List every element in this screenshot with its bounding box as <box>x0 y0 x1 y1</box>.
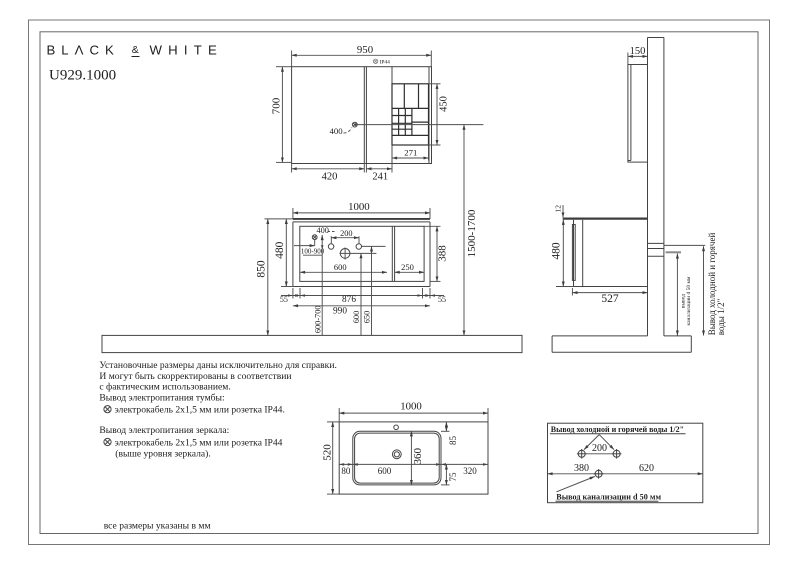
svg-text:WHITE: WHITE <box>150 43 224 58</box>
svg-text:600: 600 <box>378 466 392 476</box>
svg-text:480: 480 <box>550 242 562 260</box>
svg-text:700: 700 <box>270 97 282 114</box>
svg-text:Установочные размеры даны искл: Установочные размеры даны исключительно … <box>99 360 336 371</box>
svg-text:527: 527 <box>601 293 619 305</box>
svg-text:600: 600 <box>352 311 361 323</box>
svg-text:55: 55 <box>438 295 446 304</box>
svg-text:450: 450 <box>438 96 449 112</box>
svg-text:И могут быть скорректированы в: И могут быть скорректированы в соответст… <box>99 371 291 382</box>
svg-text:990: 990 <box>333 306 347 316</box>
svg-text:360: 360 <box>412 448 424 465</box>
svg-text:600-700: 600-700 <box>314 305 323 333</box>
svg-text:с фактическим использованием.: с фактическим использованием. <box>99 382 230 393</box>
svg-text:75: 75 <box>448 472 458 482</box>
svg-text:400: 400 <box>330 126 344 136</box>
svg-text:200: 200 <box>340 229 352 238</box>
svg-text:1000: 1000 <box>400 401 422 413</box>
svg-text:620: 620 <box>639 463 654 474</box>
svg-text:электрокабель 2х1,5 мм или роз: электрокабель 2х1,5 мм или розетка IP44 <box>115 437 283 448</box>
svg-text:388: 388 <box>437 245 449 262</box>
svg-text:320: 320 <box>463 466 477 476</box>
svg-text:85: 85 <box>448 436 458 446</box>
svg-text:Вывод канализации d 50 мм: Вывод канализации d 50 мм <box>556 493 661 502</box>
svg-text:876: 876 <box>342 295 356 305</box>
svg-text:(выше уровня зеркала).: (выше уровня зеркала). <box>115 449 210 460</box>
svg-text:Вывод электропитания тумбы:: Вывод электропитания тумбы: <box>99 393 224 404</box>
svg-text:&: & <box>132 44 139 56</box>
svg-text:520: 520 <box>322 444 334 461</box>
svg-text:канализации d 50 мм: канализации d 50 мм <box>686 276 692 325</box>
svg-text:271: 271 <box>404 148 417 158</box>
svg-text:воды 1/2": воды 1/2" <box>716 298 726 335</box>
svg-text:U929.1000: U929.1000 <box>49 68 116 84</box>
svg-text:Вывод электропитания зеркала:: Вывод электропитания зеркала: <box>99 425 229 436</box>
svg-text:Вывод холодной и горячей воды: Вывод холодной и горячей воды 1/2" <box>551 425 684 434</box>
svg-text:IP44: IP44 <box>380 60 391 66</box>
svg-text:950: 950 <box>357 44 373 56</box>
svg-text:BLΛCK: BLΛCK <box>47 43 120 58</box>
svg-text:200: 200 <box>592 443 607 454</box>
svg-text:электрокабель 2х1,5 мм или роз: электрокабель 2х1,5 мм или розетка IP44. <box>115 404 285 415</box>
svg-text:420: 420 <box>322 172 338 183</box>
svg-text:650: 650 <box>363 311 372 323</box>
svg-text:250: 250 <box>401 262 414 272</box>
svg-text:80: 80 <box>341 466 351 476</box>
svg-text:1500-1700: 1500-1700 <box>466 209 478 257</box>
svg-text:241: 241 <box>372 172 388 183</box>
svg-text:55: 55 <box>280 295 288 304</box>
svg-text:12: 12 <box>554 205 563 213</box>
svg-text:150: 150 <box>630 46 646 57</box>
svg-text:850: 850 <box>255 260 267 278</box>
svg-text:600: 600 <box>334 262 347 272</box>
svg-text:400: 400 <box>317 226 329 235</box>
svg-text:380: 380 <box>574 463 589 474</box>
svg-text:100-900: 100-900 <box>301 248 325 256</box>
svg-text:все размеры указаны в мм: все размеры указаны в мм <box>104 520 211 531</box>
svg-text:1000: 1000 <box>348 201 370 213</box>
svg-text:480: 480 <box>274 241 286 258</box>
